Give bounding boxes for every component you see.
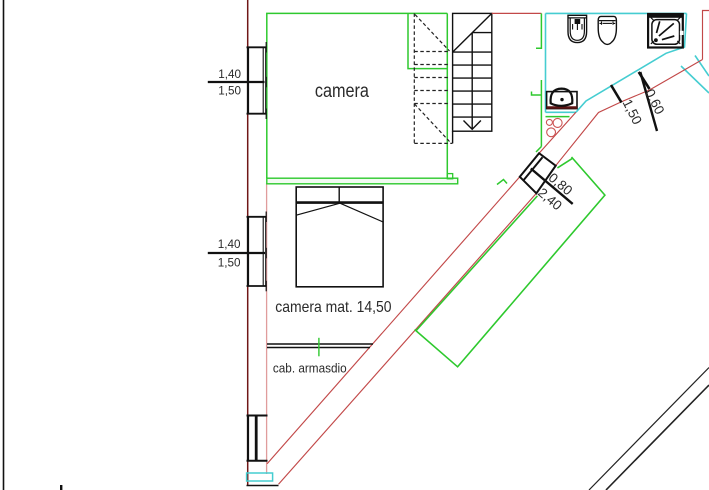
svg-text:1,40: 1,40 bbox=[218, 238, 241, 251]
svg-text:1,50: 1,50 bbox=[620, 97, 645, 127]
svg-text:camera: camera bbox=[315, 80, 369, 101]
svg-text:1,50: 1,50 bbox=[218, 257, 241, 270]
svg-text:camera mat. 14,50: camera mat. 14,50 bbox=[275, 300, 391, 317]
svg-text:0,60: 0,60 bbox=[642, 87, 667, 117]
svg-text:1,50: 1,50 bbox=[218, 85, 241, 98]
svg-text:1,40: 1,40 bbox=[218, 68, 241, 81]
svg-text:cab. armasdio: cab. armasdio bbox=[273, 361, 347, 375]
